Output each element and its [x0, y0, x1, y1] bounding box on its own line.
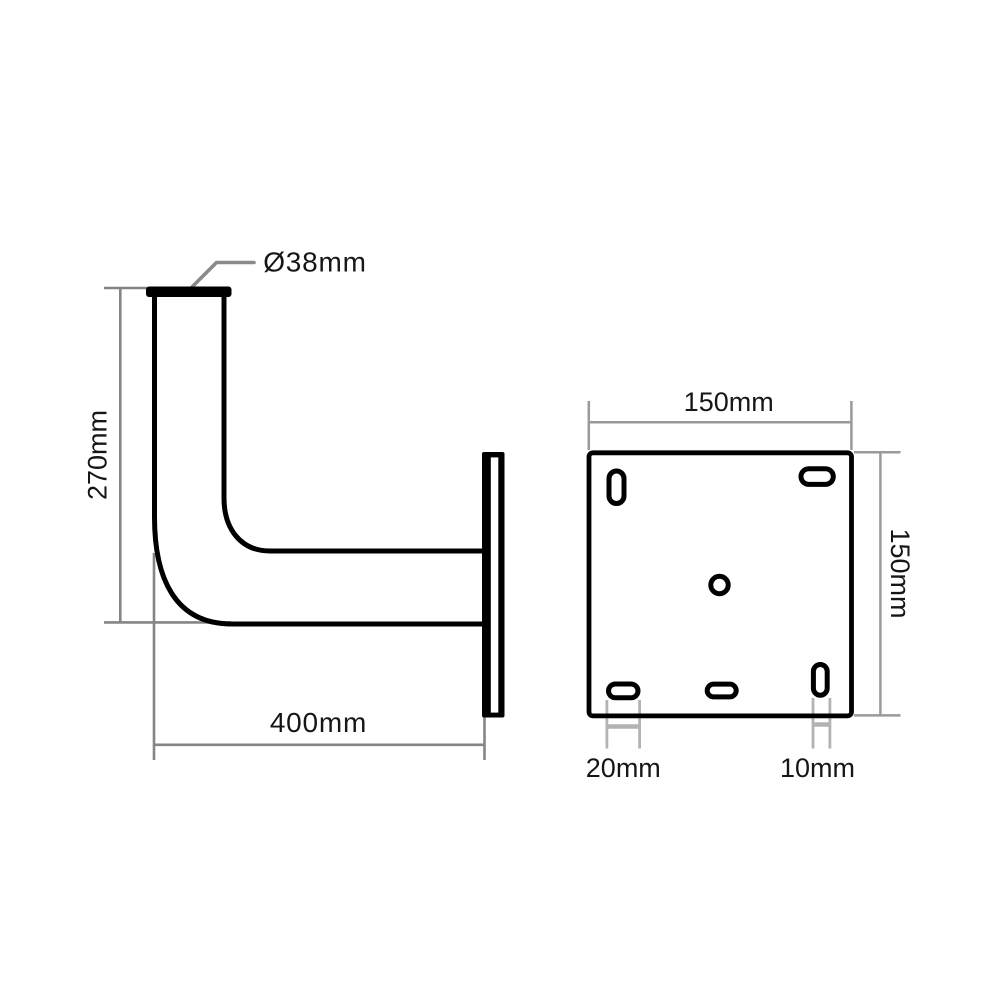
- svg-text:270mm: 270mm: [83, 410, 113, 500]
- svg-text:400mm: 400mm: [270, 707, 367, 738]
- svg-text:10mm: 10mm: [780, 753, 855, 783]
- svg-text:150mm: 150mm: [885, 528, 915, 618]
- svg-text:Ø38mm: Ø38mm: [263, 246, 367, 277]
- svg-text:20mm: 20mm: [586, 753, 661, 783]
- svg-text:150mm: 150mm: [684, 387, 774, 417]
